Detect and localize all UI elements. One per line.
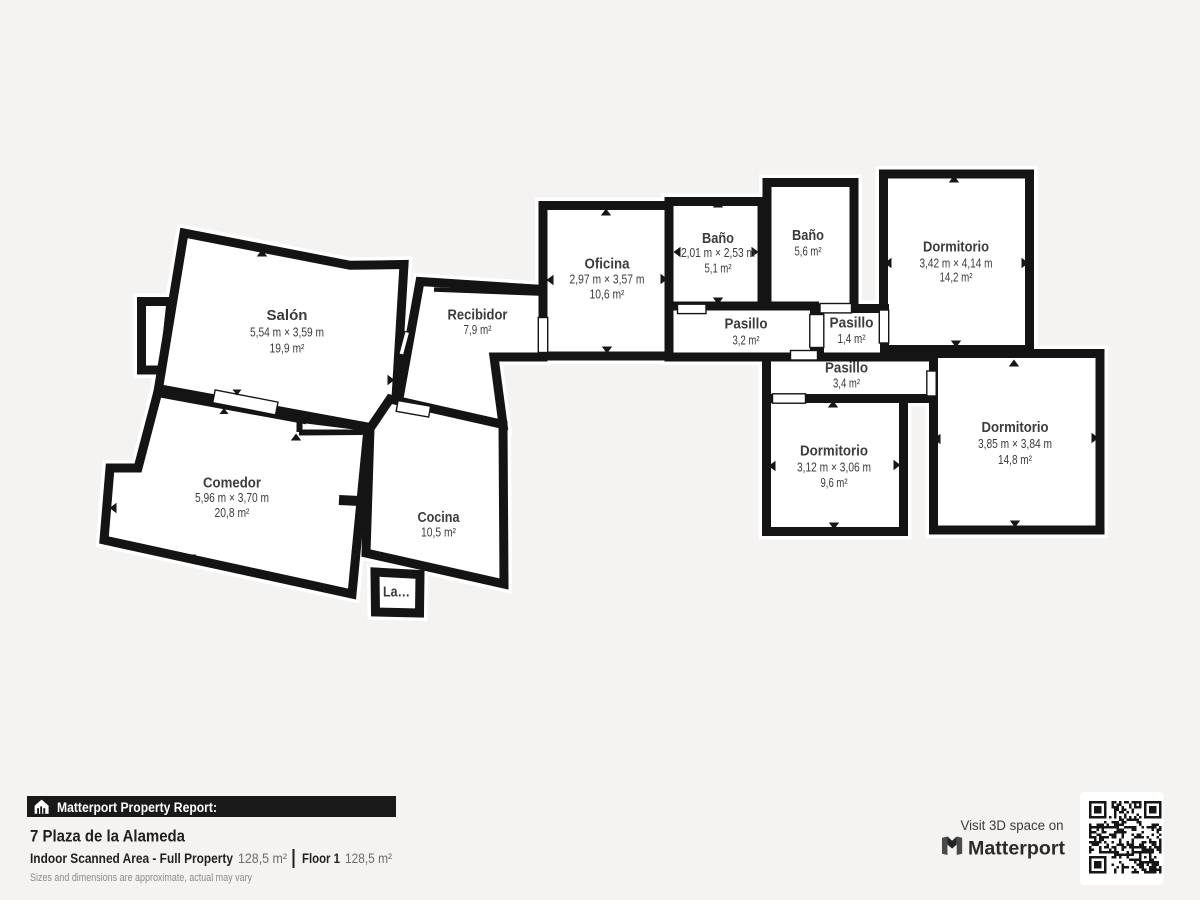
svg-text:Sizes and dimensions are appro: Sizes and dimensions are approximate, ac… bbox=[30, 872, 252, 884]
svg-text:3,4 m²: 3,4 m² bbox=[833, 376, 860, 391]
svg-text:1,4 m²: 1,4 m² bbox=[838, 331, 867, 346]
svg-text:10,5 m²: 10,5 m² bbox=[421, 525, 457, 540]
svg-text:5,6 m²: 5,6 m² bbox=[795, 244, 822, 259]
svg-text:Matterport: Matterport bbox=[968, 839, 1066, 860]
svg-text:3,42 m × 4,14 m: 3,42 m × 4,14 m bbox=[920, 256, 993, 271]
svg-text:Pasillo: Pasillo bbox=[725, 317, 768, 333]
svg-text:14,2 m²: 14,2 m² bbox=[940, 270, 973, 285]
svg-text:2,01 m × 2,53 m: 2,01 m × 2,53 m bbox=[681, 245, 755, 260]
svg-text:Salón: Salón bbox=[267, 308, 308, 324]
svg-text:20,8 m²: 20,8 m² bbox=[215, 505, 251, 520]
svg-text:5,96 m × 3,70 m: 5,96 m × 3,70 m bbox=[195, 490, 269, 505]
svg-text:Dormitorio: Dormitorio bbox=[923, 240, 989, 256]
svg-text:14,8 m²: 14,8 m² bbox=[998, 452, 1033, 467]
svg-text:Matterport Property Report:: Matterport Property Report: bbox=[57, 800, 217, 815]
svg-text:Pasillo: Pasillo bbox=[825, 361, 868, 377]
svg-text:9,6 m²: 9,6 m² bbox=[821, 475, 848, 490]
svg-text:128,5 m²: 128,5 m² bbox=[345, 851, 392, 866]
svg-text:3,85 m × 3,84 m: 3,85 m × 3,84 m bbox=[978, 436, 1052, 451]
svg-text:5,1 m²: 5,1 m² bbox=[705, 261, 732, 276]
svg-text:7 Plaza de la Alameda: 7 Plaza de la Alameda bbox=[30, 827, 185, 846]
svg-text:Dormitorio: Dormitorio bbox=[982, 420, 1049, 436]
svg-text:128,5 m²: 128,5 m² bbox=[238, 851, 287, 866]
svg-text:Dormitorio: Dormitorio bbox=[800, 444, 868, 460]
svg-text:3,12 m × 3,06 m: 3,12 m × 3,06 m bbox=[797, 460, 871, 475]
svg-text:Visit 3D space on: Visit 3D space on bbox=[961, 818, 1064, 833]
svg-text:Pasillo: Pasillo bbox=[830, 316, 874, 332]
svg-text:Indoor Scanned Area - Full Pro: Indoor Scanned Area - Full Property bbox=[30, 851, 233, 866]
svg-text:10,6 m²: 10,6 m² bbox=[590, 287, 626, 302]
svg-text:Oficina: Oficina bbox=[585, 257, 631, 273]
svg-text:Floor 1: Floor 1 bbox=[302, 851, 340, 866]
svg-text:Baño: Baño bbox=[792, 228, 824, 244]
svg-text:3,2 m²: 3,2 m² bbox=[733, 333, 760, 348]
svg-text:2,97 m × 3,57 m: 2,97 m × 3,57 m bbox=[570, 272, 645, 287]
svg-text:19,9 m²: 19,9 m² bbox=[270, 341, 306, 356]
svg-text:5,54 m × 3,59 m: 5,54 m × 3,59 m bbox=[250, 325, 324, 340]
svg-text:La…: La… bbox=[383, 585, 410, 601]
svg-text:7,9 m²: 7,9 m² bbox=[464, 322, 493, 337]
